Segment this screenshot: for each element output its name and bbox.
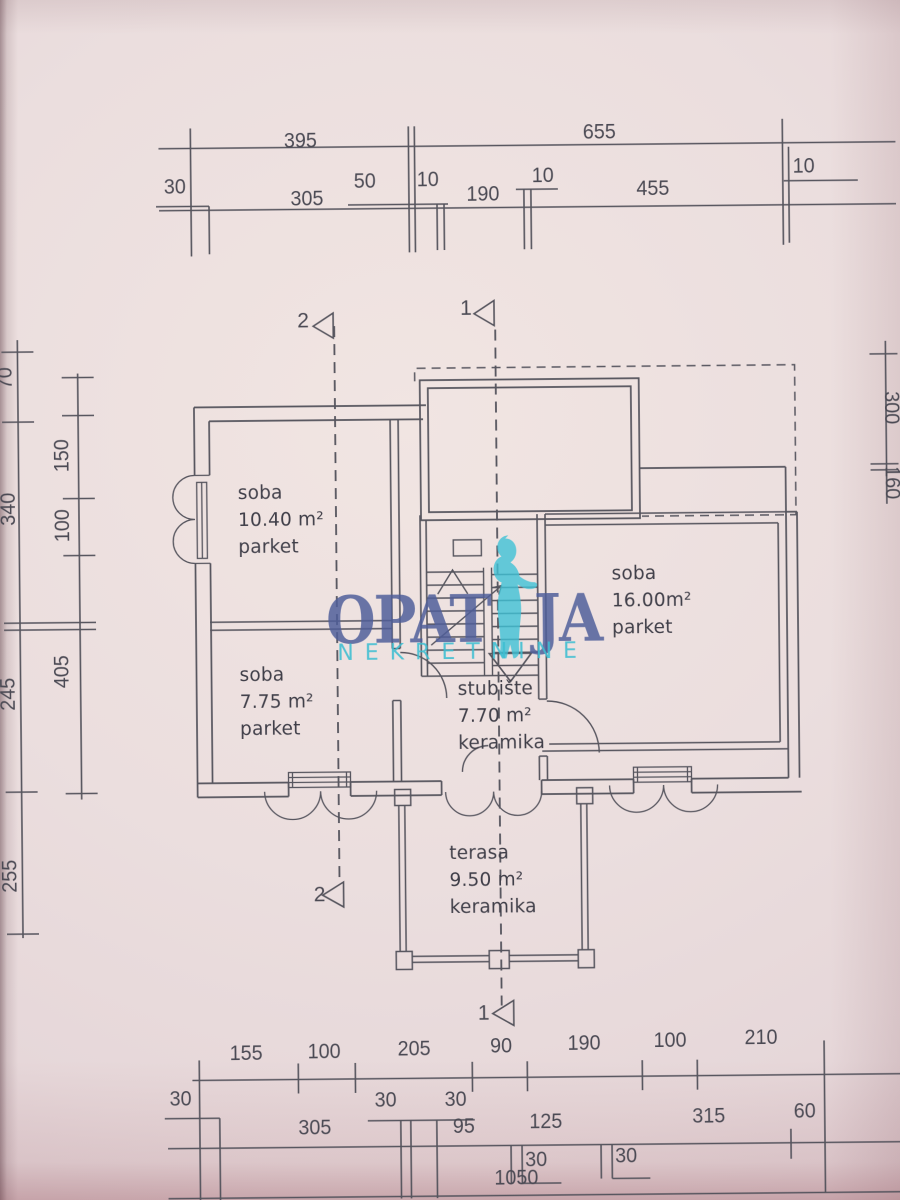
room-label-soba-1600: soba 16.00m² parket xyxy=(611,560,692,642)
dim-label: 405 xyxy=(50,655,74,688)
room-name: soba xyxy=(611,560,691,588)
dim-label: 10 xyxy=(793,154,815,178)
dim-label: 10 xyxy=(417,168,439,192)
section-marker-2-bottom: 2 xyxy=(314,883,326,907)
room-label-soba-1040: soba 10.40 m² parket xyxy=(238,479,325,561)
dim-label: 190 xyxy=(567,1032,600,1056)
room-label-stubiste: stubište 7.70 m² keramika xyxy=(458,675,546,757)
dim-label: 300 xyxy=(879,391,900,424)
room-floor: keramika xyxy=(458,729,545,757)
dim-label: 395 xyxy=(284,129,317,153)
dim-label: 245 xyxy=(0,678,21,711)
dim-label: 205 xyxy=(398,1037,431,1061)
room-label-terasa: terasa 9.50 m² keramika xyxy=(449,839,537,921)
dim-label: 100 xyxy=(308,1040,341,1064)
room-floor: parket xyxy=(238,533,324,561)
section-marker-1-bottom: 1 xyxy=(478,1002,490,1026)
dim-label: 50 xyxy=(354,170,376,194)
dim-label: 655 xyxy=(583,120,616,144)
watermark-subtitle: NEKRETNINE xyxy=(337,639,588,666)
dim-label: 190 xyxy=(466,183,499,207)
room-name: soba xyxy=(239,661,313,689)
dim-label-total: 1050 xyxy=(494,1166,538,1190)
room-floor: keramika xyxy=(450,893,537,921)
dim-label: 315 xyxy=(692,1104,725,1128)
dim-label: 125 xyxy=(529,1110,562,1134)
dim-label: 60 xyxy=(794,1100,816,1124)
dim-label: 160 xyxy=(880,466,900,499)
dim-label: 30 xyxy=(169,1088,191,1112)
room-label-soba-775: soba 7.75 m² parket xyxy=(239,661,314,743)
dim-label: 150 xyxy=(50,439,74,472)
dim-label: 30 xyxy=(164,176,186,200)
dimension-lines-left xyxy=(1,339,99,938)
dim-label: 10 xyxy=(532,164,554,188)
dim-label: 100 xyxy=(51,509,75,542)
room-area: 9.50 m² xyxy=(449,866,536,894)
dim-label: 255 xyxy=(0,860,23,893)
room-area: 16.00m² xyxy=(612,587,692,615)
drawing-layer: 395 655 30 50 10 10 10 305 190 455 70 34… xyxy=(0,0,900,1200)
section-marker-2-top: 2 xyxy=(297,309,309,333)
dim-label: 340 xyxy=(0,493,21,526)
dim-label: 70 xyxy=(0,367,18,389)
dim-label: 95 xyxy=(453,1115,475,1139)
room-name: stubište xyxy=(458,675,545,703)
dim-label: 455 xyxy=(636,177,669,201)
dim-label: 90 xyxy=(490,1034,512,1058)
room-area: 7.75 m² xyxy=(240,688,314,716)
dim-label: 30 xyxy=(375,1089,397,1113)
dim-label: 305 xyxy=(298,1116,331,1140)
dim-label: 305 xyxy=(290,187,323,211)
room-name: soba xyxy=(238,479,324,507)
dim-label: 30 xyxy=(615,1144,637,1168)
room-area: 7.70 m² xyxy=(458,702,545,730)
dimension-lines-top xyxy=(155,118,900,257)
dim-label: 100 xyxy=(653,1029,686,1053)
dim-label: 210 xyxy=(744,1026,777,1050)
room-name: terasa xyxy=(449,839,536,867)
floorplan-photo: 395 655 30 50 10 10 10 305 190 455 70 34… xyxy=(0,0,900,1200)
room-floor: parket xyxy=(240,715,314,743)
dim-label: 30 xyxy=(445,1088,467,1112)
room-area: 10.40 m² xyxy=(238,506,324,534)
dim-label: 155 xyxy=(230,1042,263,1066)
section-marker-1-top: 1 xyxy=(460,297,472,321)
room-floor: parket xyxy=(612,614,692,642)
